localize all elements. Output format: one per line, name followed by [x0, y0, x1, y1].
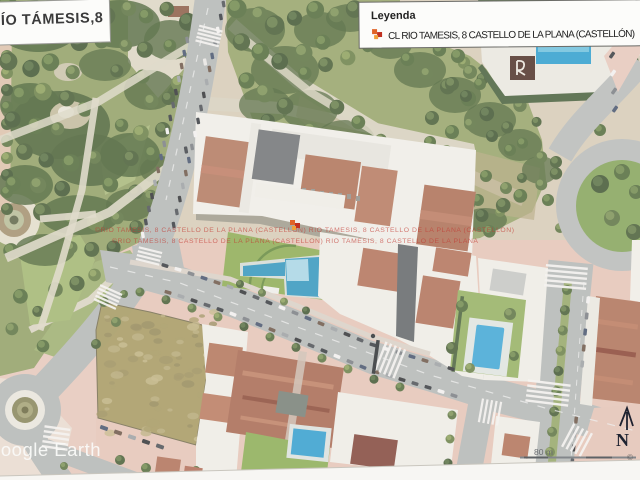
svg-text:Google Earth: Google Earth [0, 439, 101, 460]
svg-text:ÍO TÁMESIS,8: ÍO TÁMESIS,8 [1, 9, 103, 29]
svg-text:©: © [627, 453, 633, 462]
svg-text:N: N [616, 430, 629, 450]
svg-text:©RIO TAMESIS, 8 CASTELLO DE LA: ©RIO TAMESIS, 8 CASTELLO DE LA PLANA (CA… [95, 226, 515, 234]
svg-text:80 m: 80 m [534, 447, 553, 457]
svg-text:©RIO TAMESIS, 8 CASTELLO DE LA: ©RIO TAMESIS, 8 CASTELLO DE LA PLANA (CA… [112, 237, 479, 245]
svg-text:Leyenda: Leyenda [371, 10, 417, 22]
